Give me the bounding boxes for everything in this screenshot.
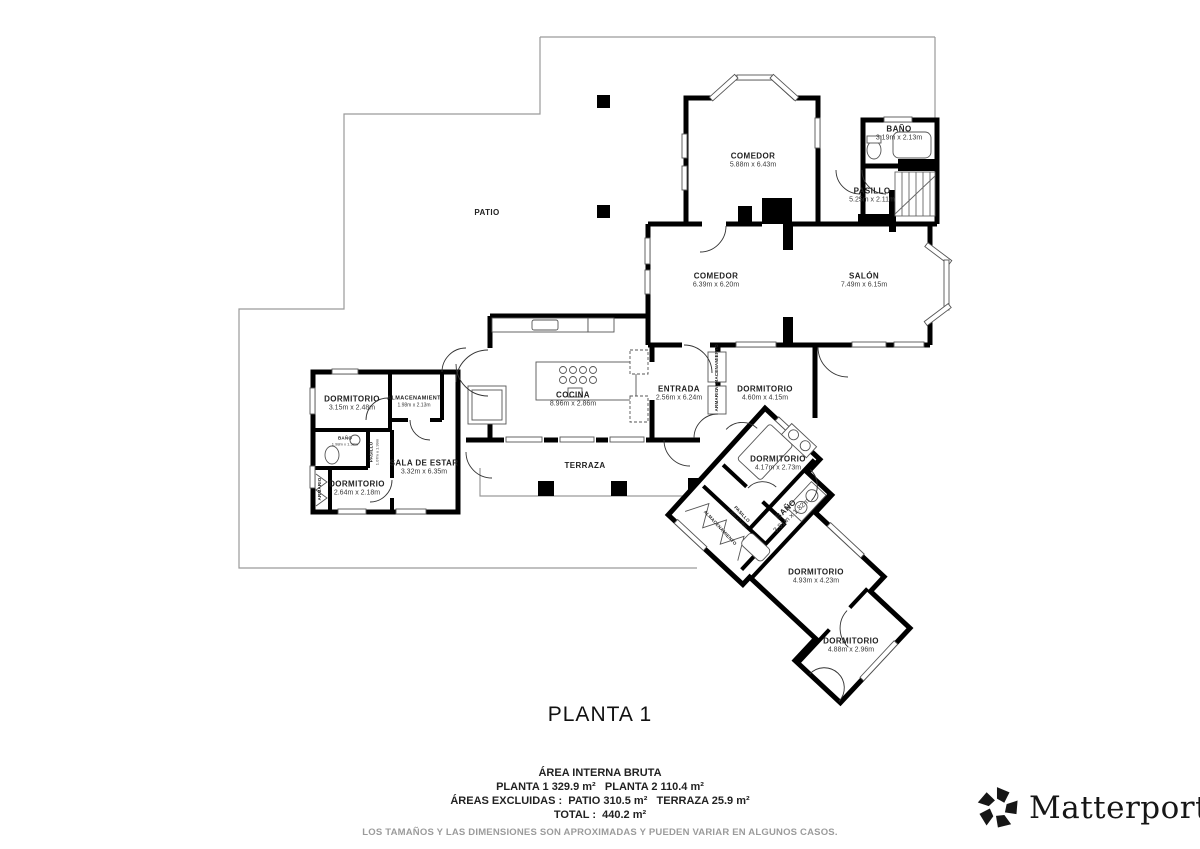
room-label: DORMITORIO4.60m x 4.15m — [737, 385, 793, 404]
room-label: ARMARIO — [714, 389, 720, 412]
room-label: COMEDOR5.88m x 6.43m — [730, 152, 776, 171]
room-label: DORMITORIO4.17m x 2.73m — [750, 455, 806, 474]
room-label: DORMITORIO4.93m x 4.23m — [788, 568, 844, 587]
room-label: SALÓN7.49m x 6.15m — [841, 272, 887, 291]
room-label: PASILLO5.25m x 2.11m — [849, 187, 895, 206]
room-label: PATIO — [474, 208, 499, 218]
room-label: DORMITORIO4.88m x 2.96m — [823, 637, 879, 656]
room-label: BAÑO3.81m x 1.82m — [766, 490, 813, 535]
room-label: DORMITORIO3.15m x 2.48m — [324, 395, 380, 414]
room-label: ALMACENAMIENT1.98m x 2.13m — [387, 395, 441, 408]
summary-gross-area: ÁREA INTERNA BRUTA — [0, 766, 1200, 780]
room-label: DORMITORIO2.64m x 2.18m — [329, 480, 385, 499]
floor-plan-page: PATIOCOMEDOR5.88m x 6.43mBAÑO3.19m x 2.1… — [0, 0, 1200, 849]
room-label: ENTRADA2.56m x 6.24m — [656, 385, 702, 404]
room-label: BAÑO3.19m x 2.13m — [876, 125, 922, 144]
room-label: COMEDOR6.39m x 6.20m — [693, 272, 739, 291]
room-label: BAÑO1.98m x 1.38m — [332, 436, 358, 447]
room-label: SALA DE ESTAR3.32m x 6.35m — [390, 459, 459, 478]
floor-title: PLANTA 1 — [0, 703, 1200, 727]
room-label: PASILLO1.07m x 1.99m — [369, 439, 380, 465]
matterport-pinwheel-icon — [975, 785, 1021, 831]
brand-wordmark: Matterport® — [1029, 790, 1200, 826]
room-label: TERRAZA — [564, 461, 605, 471]
room-label: COCINA8.96m x 2.86m — [550, 391, 596, 410]
room-label: PASILLO1.10m x 3.96m — [727, 503, 753, 530]
room-label: ALMACENAMIENTO — [714, 344, 720, 390]
matterport-logo: Matterport® — [975, 785, 1200, 831]
room-label: ARMARIO — [317, 478, 323, 501]
